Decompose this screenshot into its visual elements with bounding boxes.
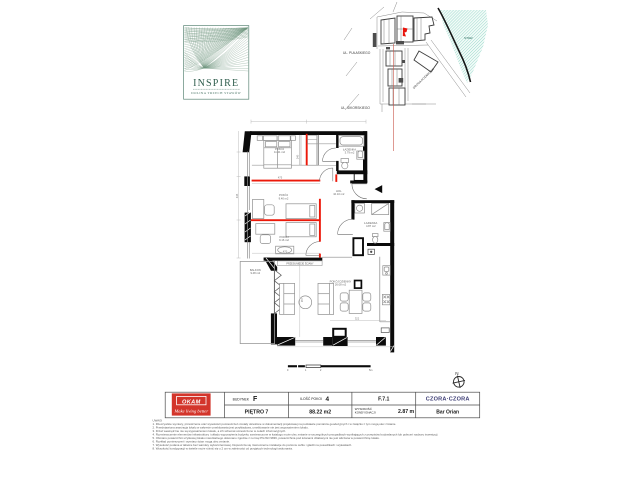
- svg-text:240: 240: [296, 154, 300, 159]
- svg-text:4.87 m2: 4.87 m2: [366, 224, 376, 228]
- svg-text:322: 322: [355, 317, 360, 321]
- svg-text:CZORA·CZORA: CZORA·CZORA: [426, 397, 470, 403]
- svg-text:Make living better: Make living better: [173, 409, 208, 414]
- svg-text:26.08 m2: 26.08 m2: [335, 283, 347, 287]
- svg-text:OKAM: OKAM: [182, 399, 201, 405]
- svg-text:PIĘTRO 7: PIĘTRO 7: [245, 409, 269, 415]
- svg-text:BUDYNEK: BUDYNEK: [233, 397, 250, 401]
- svg-text:UL. PUŁASKIEGO: UL. PUŁASKIEGO: [343, 51, 371, 55]
- svg-text:KONDYGNACJI: KONDYGNACJI: [355, 411, 376, 415]
- svg-text:INSPIRE: INSPIRE: [193, 78, 239, 89]
- svg-text:8. Wysokość kondygnacji w świe: 8. Wysokość kondygnacji w świetle może r…: [153, 447, 293, 451]
- svg-text:ILOŚĆ POKOI: ILOŚĆ POKOI: [300, 396, 322, 401]
- svg-text:N: N: [455, 371, 458, 376]
- svg-text:1: 1: [305, 369, 307, 372]
- svg-text:10.10 m2: 10.10 m2: [333, 192, 345, 196]
- svg-text:4: 4: [326, 396, 330, 403]
- svg-text:475: 475: [278, 176, 283, 180]
- svg-text:UL. SIKORSKIEGO: UL. SIKORSKIEGO: [341, 106, 370, 110]
- svg-text:11.41 m2: 11.41 m2: [274, 150, 286, 154]
- svg-text:F: F: [253, 396, 258, 403]
- svg-text:5m: 5m: [369, 369, 372, 372]
- svg-text:DOLINA TRZECH STAWÓW: DOLINA TRZECH STAWÓW: [191, 90, 241, 95]
- svg-text:DROGA POŻAROWA: DROGA POŻAROWA: [411, 67, 435, 90]
- svg-text:Bar Orian: Bar Orian: [436, 409, 459, 415]
- svg-text:9.48 m2: 9.48 m2: [250, 271, 260, 275]
- svg-text:2.87 m: 2.87 m: [398, 409, 415, 415]
- svg-text:STAW: STAW: [464, 36, 473, 40]
- svg-text:F.7.1: F.7.1: [378, 397, 389, 403]
- svg-text:445: 445: [235, 193, 239, 198]
- svg-text:0: 0: [287, 369, 289, 372]
- svg-text:2: 2: [320, 369, 322, 372]
- svg-text:9.40 m2: 9.40 m2: [279, 196, 289, 200]
- svg-text:357: 357: [300, 297, 304, 302]
- svg-text:470: 470: [283, 249, 288, 253]
- svg-text:9.16 m2: 9.16 m2: [279, 238, 289, 242]
- svg-text:88.22 m2: 88.22 m2: [309, 409, 331, 415]
- svg-text:3.79 m2: 3.79 m2: [345, 151, 355, 155]
- svg-text:PRZESUNIĘCIE ŚCIANY: PRZESUNIĘCIE ŚCIANY: [286, 262, 314, 265]
